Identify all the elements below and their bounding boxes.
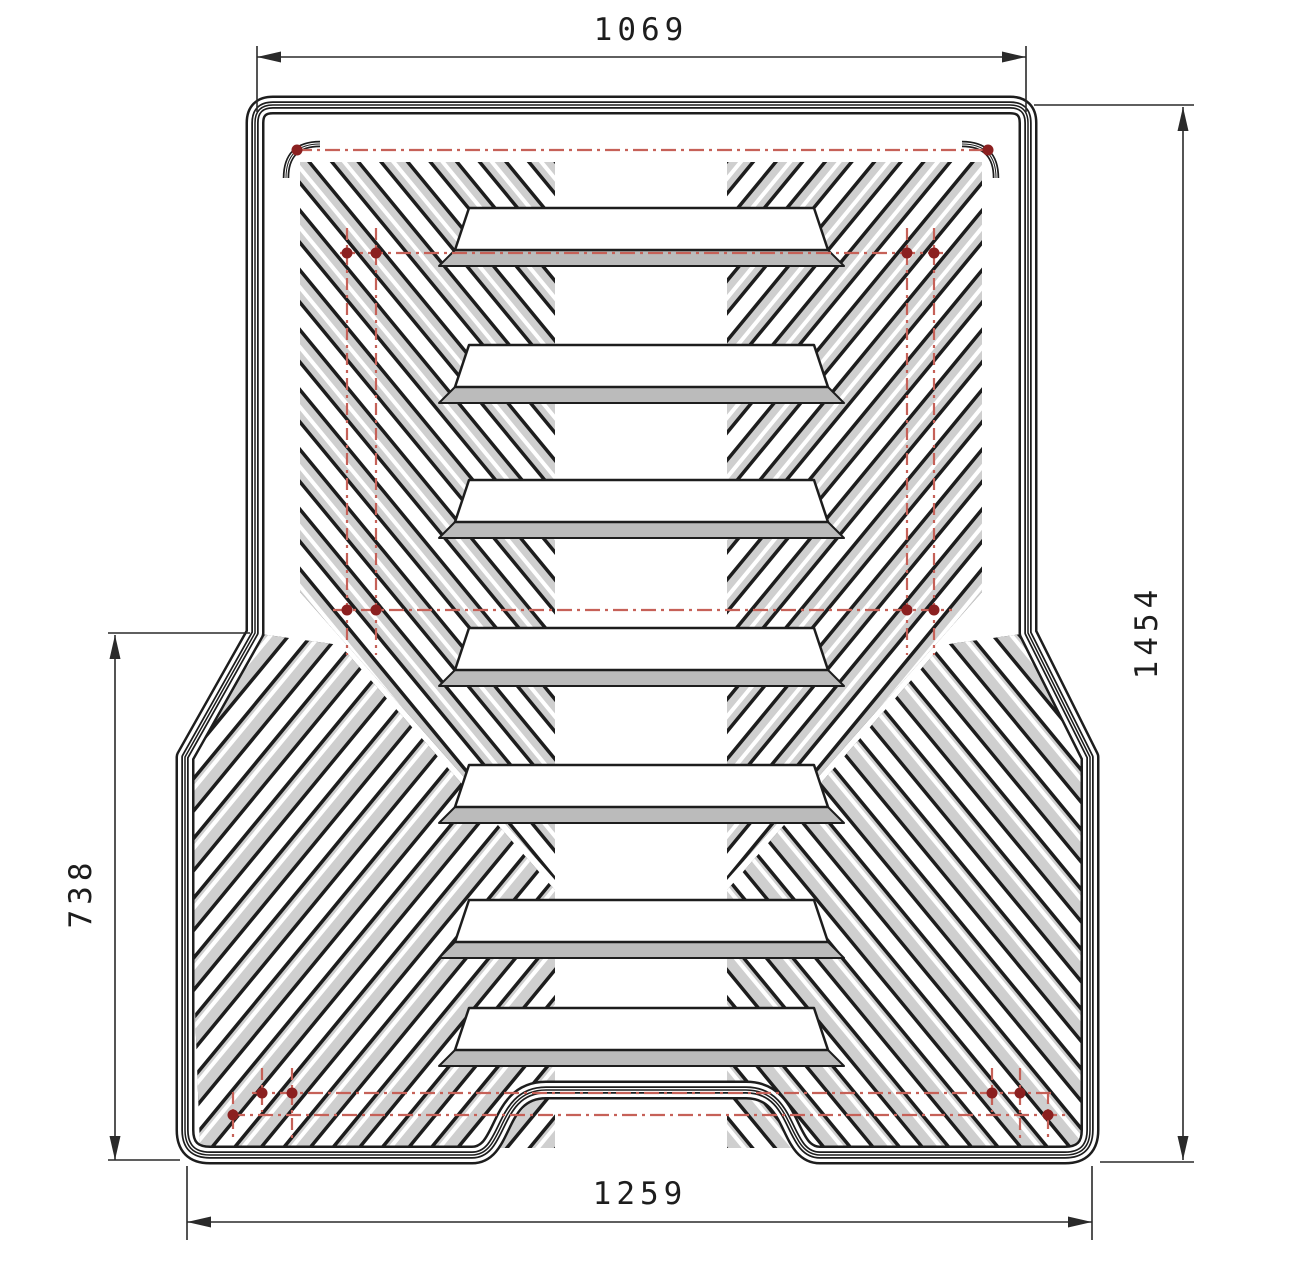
dimension-arrow — [110, 1136, 121, 1160]
tread-riser — [439, 387, 844, 403]
tread-step — [439, 480, 844, 538]
dimension-bottom: 1259 — [187, 1166, 1092, 1240]
dimension-label-top: 1069 — [594, 12, 689, 48]
tread-step — [439, 1008, 844, 1066]
dimension-label-left: 738 — [63, 858, 99, 929]
datum-point — [292, 145, 303, 156]
datum-point — [983, 145, 994, 156]
dimension-arrow — [1002, 52, 1026, 63]
datum-point — [342, 605, 353, 616]
dimension-arrow — [257, 52, 281, 63]
dimension-arrow — [1178, 107, 1189, 131]
tread-riser — [439, 670, 844, 686]
tread-face — [455, 628, 828, 670]
datum-point — [342, 248, 353, 259]
datum-point — [257, 1088, 268, 1099]
tread-riser — [439, 807, 844, 823]
dimension-arrow — [110, 635, 121, 659]
tread-face — [455, 345, 828, 387]
tread-step — [439, 900, 844, 958]
tread-step — [439, 345, 844, 403]
tread-step — [439, 628, 844, 686]
tread-step — [439, 208, 844, 266]
datum-point — [371, 605, 382, 616]
datum-point — [929, 605, 940, 616]
tread-riser — [439, 1050, 844, 1066]
technical-drawing-page: 106914547381259 — [0, 0, 1290, 1268]
tread-riser — [439, 522, 844, 538]
datum-point — [287, 1088, 298, 1099]
tread-face — [455, 208, 828, 250]
datum-point — [371, 248, 382, 259]
dimension-arrow — [1178, 1136, 1189, 1160]
tread-face — [455, 480, 828, 522]
tread-face — [455, 1008, 828, 1050]
datum-point — [929, 248, 940, 259]
datum-point — [902, 605, 913, 616]
bed-mat-drawing: 106914547381259 — [0, 0, 1290, 1268]
dimension-arrow — [187, 1217, 211, 1228]
tread-riser — [439, 942, 844, 958]
datum-point — [1043, 1110, 1054, 1121]
dimension-arrow — [1068, 1217, 1092, 1228]
datum-point — [902, 248, 913, 259]
datum-point — [987, 1088, 998, 1099]
datum-point — [1015, 1088, 1026, 1099]
dimension-label-bottom: 1259 — [593, 1176, 688, 1212]
tread-face — [455, 900, 828, 942]
tread-step — [439, 765, 844, 823]
datum-point — [228, 1110, 239, 1121]
tread-face — [455, 765, 828, 807]
dimension-label-right: 1454 — [1129, 585, 1165, 680]
